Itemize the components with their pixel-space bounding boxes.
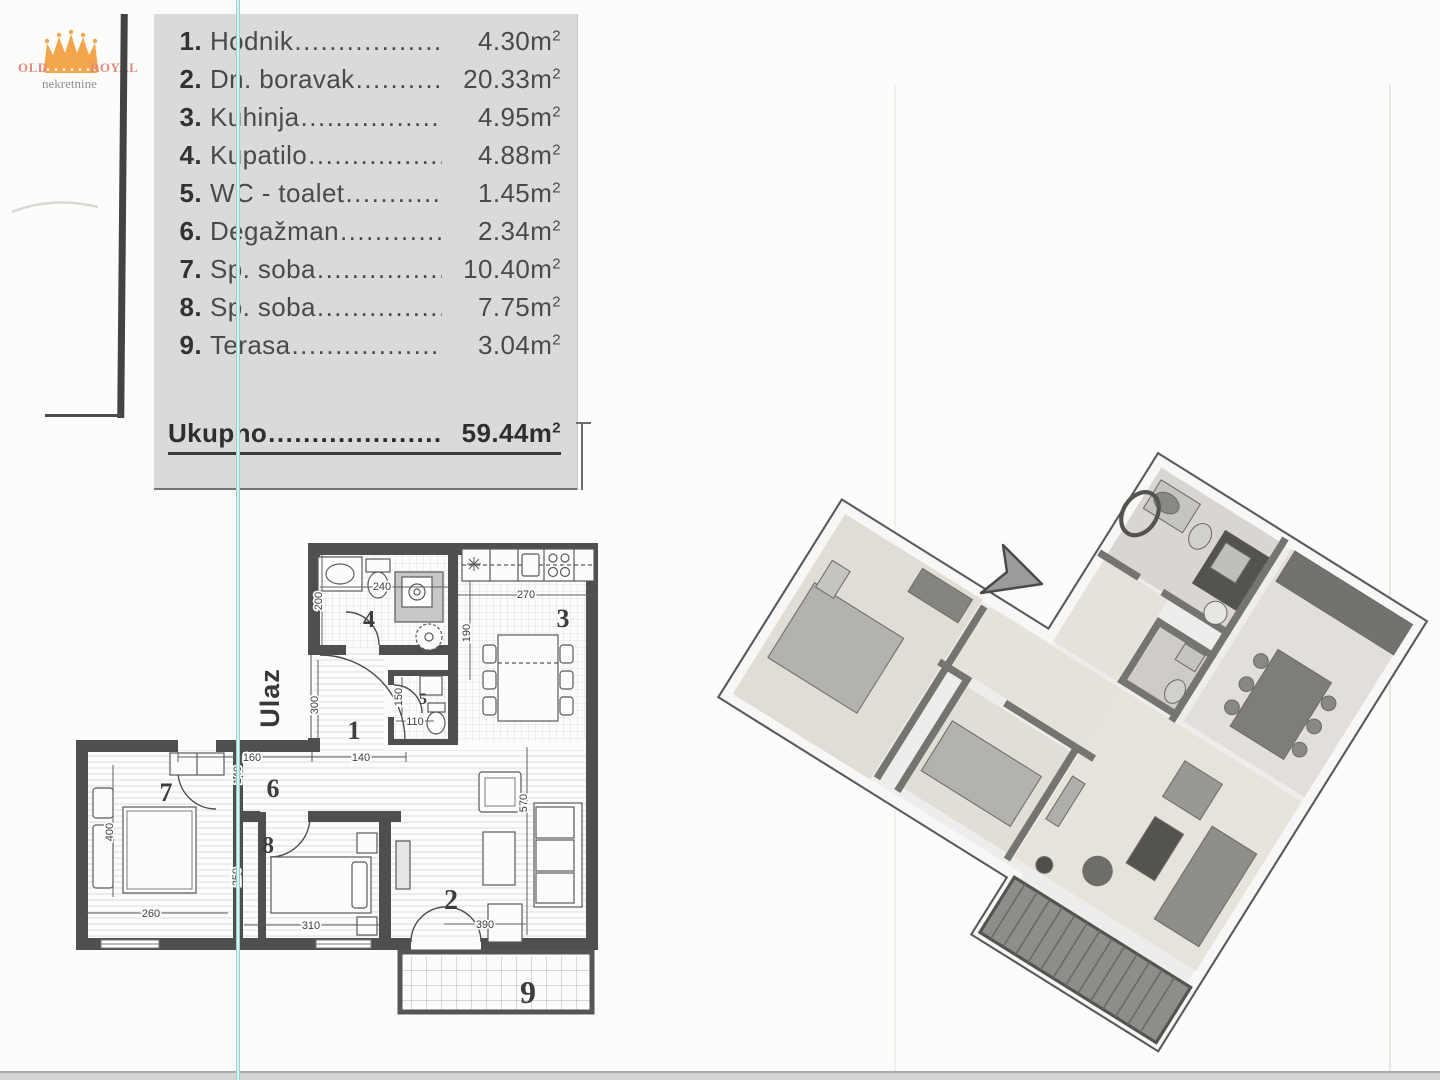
- room-number-7: 7: [160, 778, 173, 807]
- dim-200: 200: [313, 592, 325, 610]
- area-row: 6. Degažman ............................…: [168, 216, 561, 254]
- room-number-6: 6: [267, 774, 280, 803]
- row-number: 9.: [168, 330, 202, 361]
- total-label: Ukupno: [168, 418, 267, 449]
- scan-artifact-teal-line: [236, 0, 240, 1080]
- area-row: 9. Terasa ..............................…: [168, 330, 561, 368]
- row-label: Terasa: [210, 330, 290, 361]
- dim-570: 570: [518, 794, 530, 812]
- dim-270: 270: [517, 589, 535, 601]
- row-label: WC - toalet: [210, 178, 344, 209]
- row-leader: ........................................…: [308, 140, 442, 171]
- room-number-8: 8: [262, 833, 274, 859]
- dim-260: 260: [142, 908, 160, 920]
- area-row: 5. WC - toalet .........................…: [168, 178, 561, 216]
- row-number: 5.: [168, 178, 202, 209]
- row-value: 10.40m2: [443, 254, 561, 285]
- row-label: Degažman: [210, 216, 339, 247]
- dim-400: 400: [104, 823, 116, 841]
- row-label: Sp. soba: [210, 292, 316, 323]
- dim-110: 110: [406, 716, 424, 728]
- room-number-3: 3: [557, 604, 570, 633]
- row-value: 2.34m2: [443, 216, 561, 247]
- row-value: 4.88m2: [443, 140, 561, 171]
- area-row: 4. Kupatilo ............................…: [168, 140, 561, 178]
- entrance-arrow-icon: [981, 545, 1042, 593]
- row-value: 20.33m2: [443, 64, 561, 95]
- entrance-label: Ulaz: [255, 668, 285, 728]
- row-leader: ........................................…: [291, 330, 442, 361]
- area-list-panel: 1. Hodnik ..............................…: [154, 14, 578, 490]
- area-row: 3. Kuhinja .............................…: [168, 102, 561, 140]
- row-number: 3.: [168, 102, 202, 133]
- room-number-5: 5: [419, 691, 427, 708]
- isometric-3d-view: [676, 452, 1440, 1072]
- area-total-row: Ukupno .................................…: [168, 418, 561, 455]
- logo-subtitle: nekretnine: [42, 76, 97, 92]
- scan-artifact-horizontal-line: [45, 414, 122, 417]
- agency-logo: OLD ROYAL nekretnine: [14, 26, 134, 96]
- row-value: 3.04m2: [443, 330, 561, 361]
- dim-310: 310: [302, 920, 320, 932]
- row-leader: ........................................…: [294, 26, 442, 57]
- panel-corner-mark-h: [576, 422, 591, 424]
- row-value: 4.30m2: [443, 26, 561, 57]
- area-row: 8. Sp. soba ............................…: [168, 292, 561, 330]
- row-label: Sp. soba: [210, 254, 316, 285]
- row-value: 1.45m2: [443, 178, 561, 209]
- room-number-9: 9: [520, 974, 536, 1010]
- row-leader: ........................................…: [340, 216, 442, 247]
- total-value: 59.44m2: [443, 418, 561, 449]
- row-value: 7.75m2: [443, 292, 561, 323]
- row-leader: ........................................…: [317, 292, 442, 323]
- row-leader: ........................................…: [345, 178, 442, 209]
- area-row: 2. Dn. boravak .........................…: [168, 64, 561, 102]
- row-number: 1.: [168, 26, 202, 57]
- total-leader: ........................................…: [268, 418, 442, 449]
- room-number-2: 2: [444, 885, 458, 916]
- floor-plan-2d: 240 200 270 190 300 160 140 140 400 260 …: [66, 535, 606, 1025]
- dim-390: 390: [476, 919, 494, 931]
- dim-240: 240: [373, 581, 391, 593]
- panel-corner-mark-v: [581, 423, 583, 490]
- row-label: Hodnik: [210, 26, 293, 57]
- room-number-4: 4: [363, 607, 375, 633]
- logo-text-royal: ROYAL: [90, 60, 138, 76]
- dim-150: 150: [393, 688, 405, 706]
- row-label: Dn. boravak: [210, 64, 355, 95]
- dim-140a: 140: [352, 752, 370, 764]
- scan-artifact-faint-arc: [10, 192, 100, 218]
- area-row: 7. Sp. soba ............................…: [168, 254, 561, 292]
- row-number: 7.: [168, 254, 202, 285]
- row-leader: ........................................…: [317, 254, 442, 285]
- row-leader: ........................................…: [301, 102, 442, 133]
- dim-160: 160: [243, 752, 261, 764]
- row-label: Kuhinja: [210, 102, 300, 133]
- scan-artifact-bottom-band: [0, 1071, 1440, 1080]
- logo-text-old: OLD: [18, 60, 48, 76]
- row-label: Kupatilo: [210, 140, 307, 171]
- row-number: 8.: [168, 292, 202, 323]
- row-value: 4.95m2: [443, 102, 561, 133]
- row-leader: ........................................…: [356, 64, 442, 95]
- dim-190: 190: [461, 624, 473, 642]
- row-number: 4.: [168, 140, 202, 171]
- scanned-floorplan-page: OLD ROYAL nekretnine 1. Hodnik .........…: [0, 0, 1440, 1080]
- row-number: 2.: [168, 64, 202, 95]
- dim-300: 300: [309, 696, 321, 714]
- row-number: 6.: [168, 216, 202, 247]
- area-row: 1. Hodnik ..............................…: [168, 26, 561, 64]
- room-number-1: 1: [348, 716, 361, 745]
